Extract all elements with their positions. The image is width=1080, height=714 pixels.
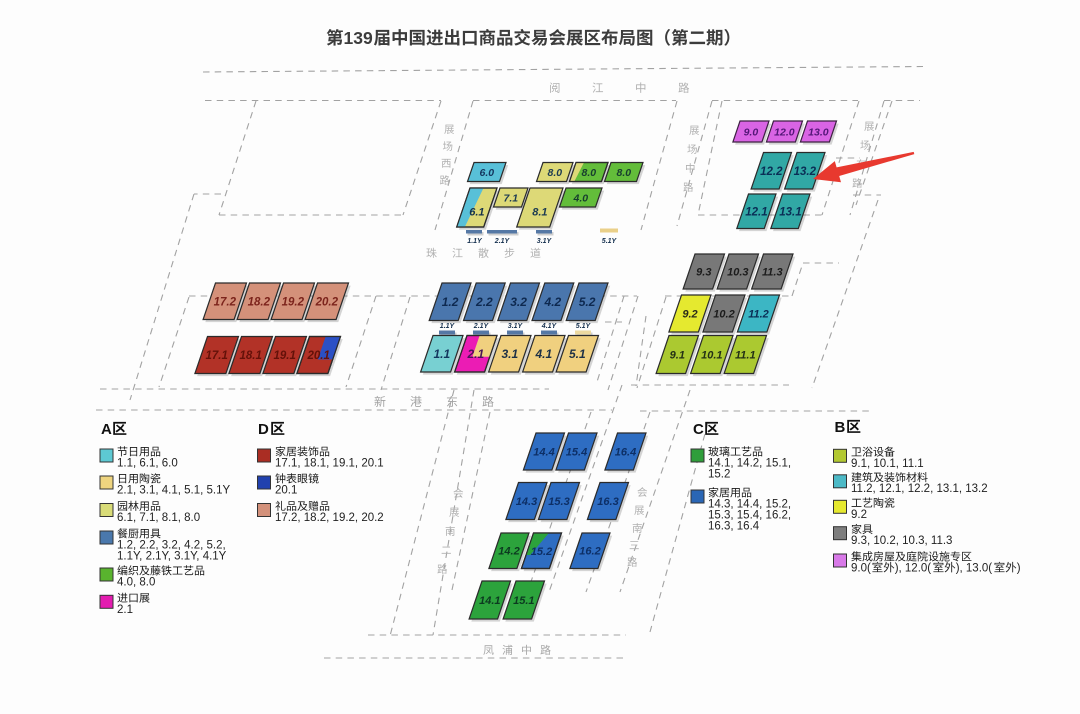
svg-text:14.1: 14.1 xyxy=(479,595,500,607)
svg-text:8.0: 8.0 xyxy=(547,167,562,179)
svg-text:10.1: 10.1 xyxy=(701,350,722,362)
svg-text:9.0: 9.0 xyxy=(744,126,759,138)
svg-text:13.1: 13.1 xyxy=(779,206,801,218)
svg-text:14.2: 14.2 xyxy=(498,546,519,558)
svg-text:2.2: 2.2 xyxy=(475,295,493,309)
svg-text:14.4: 14.4 xyxy=(533,447,554,459)
svg-text:14.3: 14.3 xyxy=(516,496,537,508)
svg-text:8.0: 8.0 xyxy=(616,167,631,179)
svg-text:2.1: 2.1 xyxy=(466,347,484,361)
svg-text:4.1Y: 4.1Y xyxy=(541,323,558,330)
svg-text:17.1, 18.1, 19.1, 20.1: 17.1, 18.1, 19.1, 20.1 xyxy=(275,458,384,470)
svg-text:9.0(: 9.0( xyxy=(851,563,871,575)
svg-text:C: C xyxy=(693,421,704,438)
svg-text:17.1: 17.1 xyxy=(206,350,228,362)
svg-text:3.1Y: 3.1Y xyxy=(537,238,553,245)
svg-text:6.1, 7.1, 8.1, 8.0: 6.1, 7.1, 8.1, 8.0 xyxy=(117,512,200,524)
svg-text:16.4: 16.4 xyxy=(615,447,636,459)
svg-text:12.1: 12.1 xyxy=(745,206,767,218)
svg-text:16.2: 16.2 xyxy=(579,546,600,558)
svg-text:18.1: 18.1 xyxy=(240,350,262,362)
svg-text:1.1, 6.1, 6.0: 1.1, 6.1, 6.0 xyxy=(117,458,178,470)
svg-text:11.2: 11.2 xyxy=(748,309,769,321)
svg-text:), 12.0(: ), 12.0( xyxy=(895,563,932,575)
svg-text:9.2: 9.2 xyxy=(851,509,867,521)
svg-text:9.2: 9.2 xyxy=(682,309,697,321)
svg-text:19.2: 19.2 xyxy=(282,296,305,308)
svg-text:5.1Y: 5.1Y xyxy=(602,238,618,245)
svg-text:9.3, 10.2, 10.3, 11.3: 9.3, 10.2, 10.3, 11.3 xyxy=(851,535,952,547)
svg-text:12.2: 12.2 xyxy=(760,166,783,178)
svg-text:4.2: 4.2 xyxy=(544,295,562,309)
svg-text:3.1: 3.1 xyxy=(501,347,518,361)
svg-text:3.2: 3.2 xyxy=(510,295,527,309)
svg-text:11.2, 12.1, 12.2, 13.1, 13.2: 11.2, 12.1, 12.2, 13.1, 13.2 xyxy=(851,483,988,495)
svg-text:5.2: 5.2 xyxy=(579,295,596,309)
svg-text:20.2: 20.2 xyxy=(315,296,339,308)
svg-text:3.1Y: 3.1Y xyxy=(508,323,524,330)
svg-text:11.3: 11.3 xyxy=(762,267,783,279)
svg-text:12.0: 12.0 xyxy=(774,126,795,138)
svg-text:10.3: 10.3 xyxy=(727,267,748,279)
svg-text:16.3, 16.4: 16.3, 16.4 xyxy=(708,521,760,533)
svg-text:15.2: 15.2 xyxy=(531,546,552,558)
svg-text:17.2, 18.2, 19.2, 20.2: 17.2, 18.2, 19.2, 20.2 xyxy=(275,512,384,524)
svg-text:139: 139 xyxy=(344,28,373,48)
svg-text:1.2: 1.2 xyxy=(442,295,459,309)
svg-text:15.1: 15.1 xyxy=(513,595,534,607)
svg-text:19.1: 19.1 xyxy=(274,350,296,362)
svg-text:2.1Y: 2.1Y xyxy=(473,323,490,330)
svg-text:13.0: 13.0 xyxy=(808,126,829,138)
svg-text:15.4: 15.4 xyxy=(566,447,587,459)
svg-text:6.0: 6.0 xyxy=(479,167,494,179)
svg-text:9.3: 9.3 xyxy=(696,267,711,279)
svg-text:B: B xyxy=(835,419,846,436)
svg-text:1.1Y: 1.1Y xyxy=(467,238,483,245)
svg-text:20.1: 20.1 xyxy=(275,485,297,497)
svg-text:4.0: 4.0 xyxy=(572,192,588,204)
svg-text:13.2: 13.2 xyxy=(794,166,817,178)
svg-text:17.2: 17.2 xyxy=(214,296,237,308)
svg-text:5.1: 5.1 xyxy=(569,347,586,361)
svg-text:): ) xyxy=(1017,563,1021,575)
svg-text:16.3: 16.3 xyxy=(597,496,618,508)
svg-text:20.1: 20.1 xyxy=(307,350,330,362)
svg-text:2.1: 2.1 xyxy=(117,604,133,616)
svg-text:6.1: 6.1 xyxy=(469,207,484,219)
svg-text:15.3: 15.3 xyxy=(548,496,569,508)
svg-text:8.1: 8.1 xyxy=(532,207,547,219)
svg-text:15.2: 15.2 xyxy=(708,469,730,481)
svg-text:1.1: 1.1 xyxy=(433,347,450,361)
svg-text:), 13.0(: ), 13.0( xyxy=(956,563,993,575)
svg-text:2.1, 3.1, 4.1, 5.1, 5.1Y: 2.1, 3.1, 4.1, 5.1, 5.1Y xyxy=(117,485,230,497)
svg-text:4.1: 4.1 xyxy=(534,347,552,361)
svg-text:9.1: 9.1 xyxy=(670,350,685,362)
svg-text:11.1: 11.1 xyxy=(735,350,756,362)
svg-text:4.0, 8.0: 4.0, 8.0 xyxy=(117,577,155,589)
svg-text:7.1: 7.1 xyxy=(503,192,518,204)
svg-text:1.1Y: 1.1Y xyxy=(440,323,456,330)
svg-text:9.1, 10.1, 11.1: 9.1, 10.1, 11.1 xyxy=(851,458,924,470)
svg-text:D: D xyxy=(258,421,269,438)
svg-text:2.1Y: 2.1Y xyxy=(494,238,511,245)
svg-text:18.2: 18.2 xyxy=(248,296,271,308)
svg-text:10.2: 10.2 xyxy=(713,309,734,321)
svg-text:1.1Y, 2.1Y, 3.1Y, 4.1Y: 1.1Y, 2.1Y, 3.1Y, 4.1Y xyxy=(117,551,227,563)
svg-text:8.0: 8.0 xyxy=(581,167,596,179)
svg-text:5.1Y: 5.1Y xyxy=(576,323,592,330)
svg-text:A: A xyxy=(101,421,112,438)
